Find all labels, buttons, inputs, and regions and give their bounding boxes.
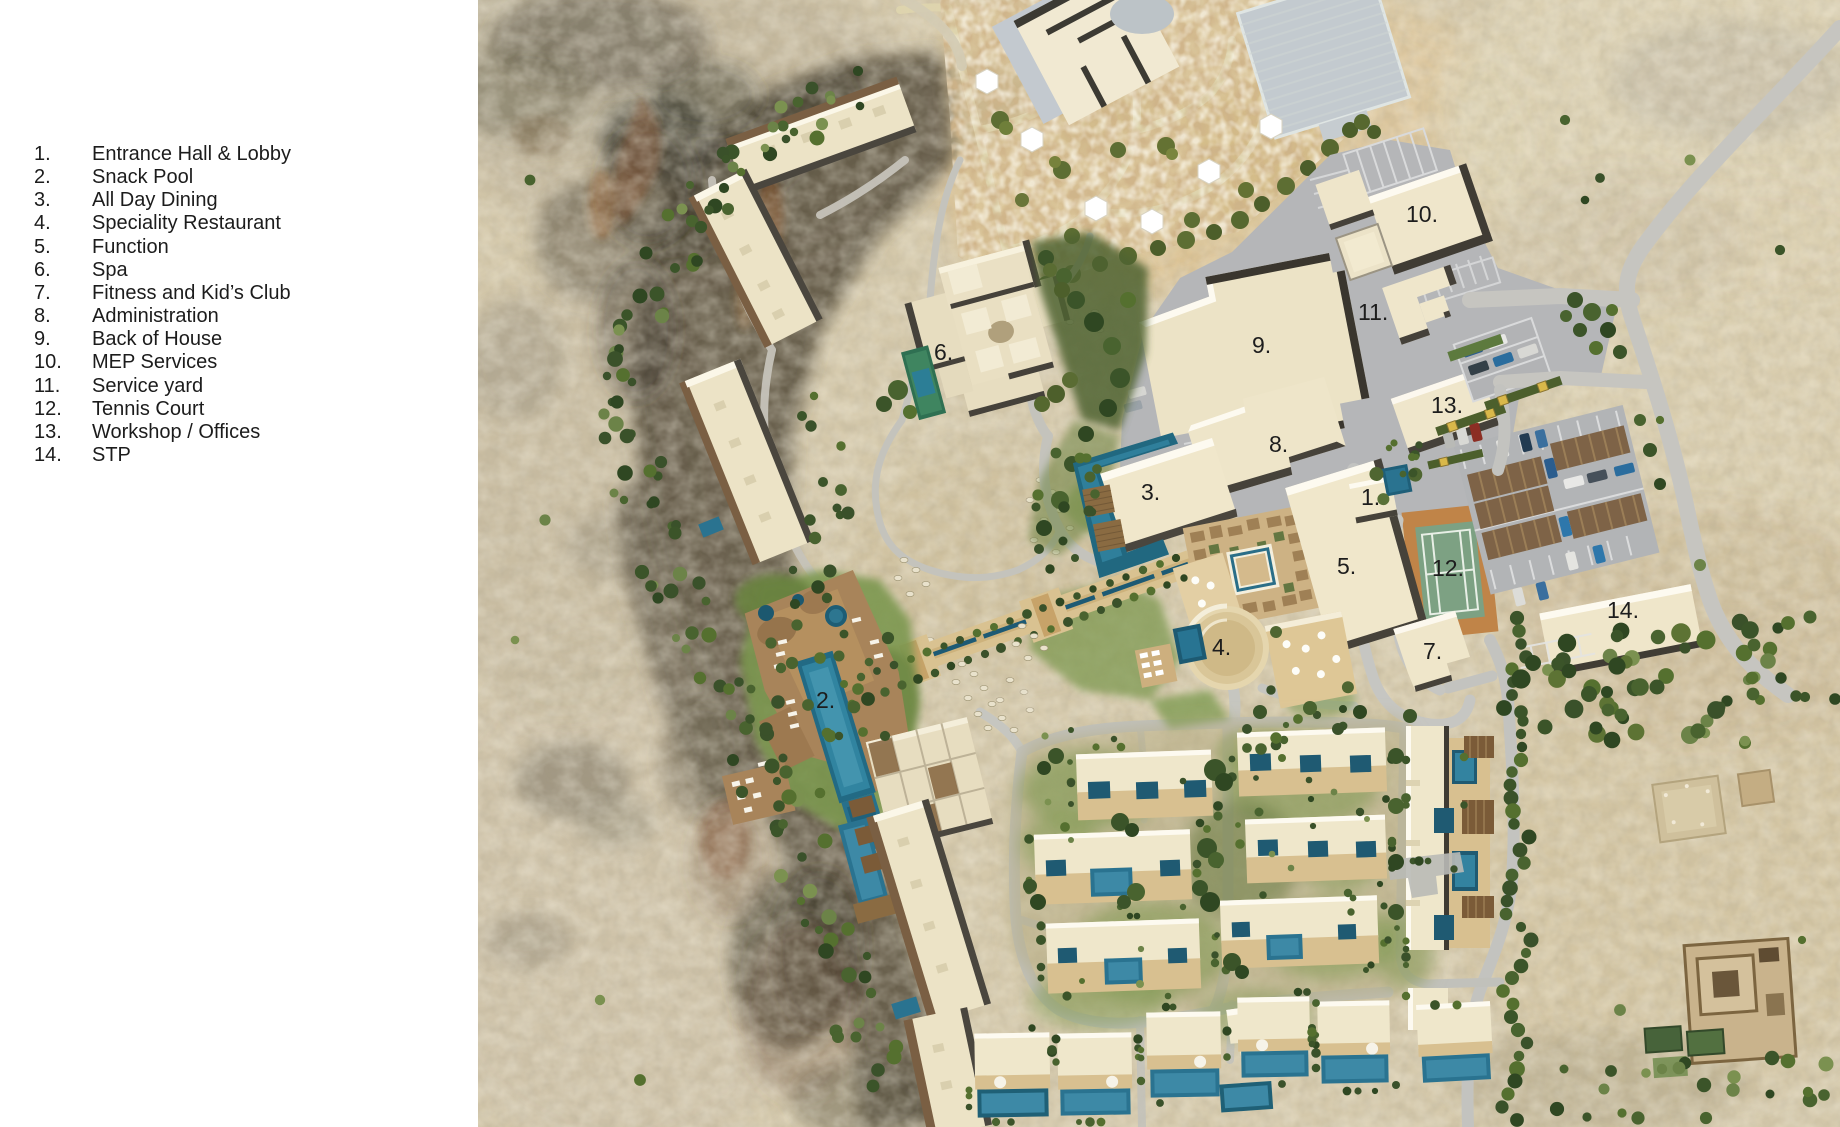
svg-text:12.: 12. [1432, 555, 1464, 581]
svg-text:10.: 10. [1406, 201, 1438, 227]
svg-text:11.: 11. [1358, 299, 1388, 325]
svg-text:5.: 5. [1337, 553, 1356, 579]
svg-text:14.: 14. [1607, 597, 1639, 623]
svg-text:4.: 4. [1212, 634, 1231, 660]
svg-text:1.: 1. [1361, 484, 1380, 510]
svg-text:9.: 9. [1252, 332, 1271, 358]
svg-text:2.: 2. [816, 687, 835, 713]
svg-text:8.: 8. [1269, 431, 1288, 457]
svg-text:3.: 3. [1141, 479, 1160, 505]
svg-text:6.: 6. [934, 339, 953, 365]
svg-text:13.: 13. [1431, 392, 1463, 418]
svg-text:7.: 7. [1423, 638, 1442, 664]
